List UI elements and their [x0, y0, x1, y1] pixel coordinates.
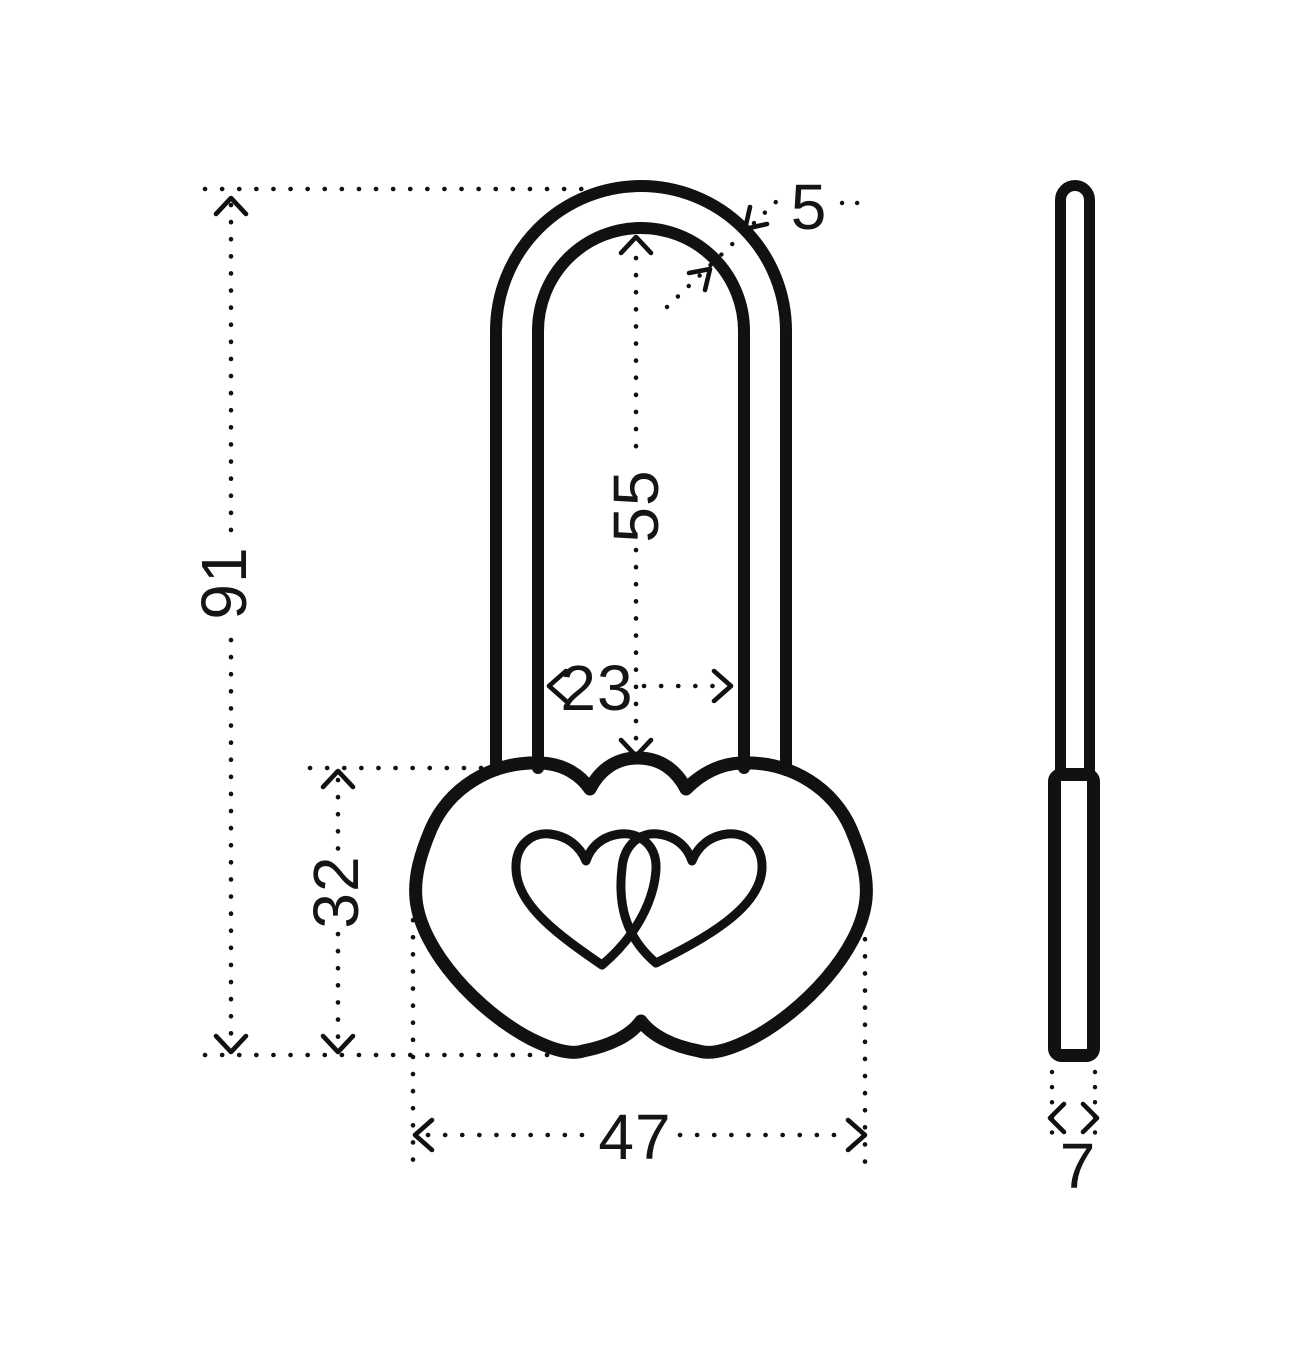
drawing-canvas: 91 55 23 5 32 47 — [0, 0, 1304, 1372]
dim-label-shackle-wire-diameter: 5 — [791, 171, 828, 243]
dim-label-shackle-inner-width: 23 — [560, 652, 633, 724]
dim-label-overall-height: 91 — [188, 546, 260, 619]
dim-label-shackle-inner-height: 55 — [600, 469, 672, 542]
dim-label-body-height: 32 — [300, 855, 372, 928]
dim-label-body-width: 47 — [598, 1101, 671, 1173]
body-outline — [416, 758, 867, 1052]
padlock-dimension-drawing: 91 55 23 5 32 47 — [0, 0, 1304, 1372]
dim-label-body-thickness: 7 — [1060, 1130, 1097, 1202]
side-body-outline — [1055, 775, 1094, 1056]
